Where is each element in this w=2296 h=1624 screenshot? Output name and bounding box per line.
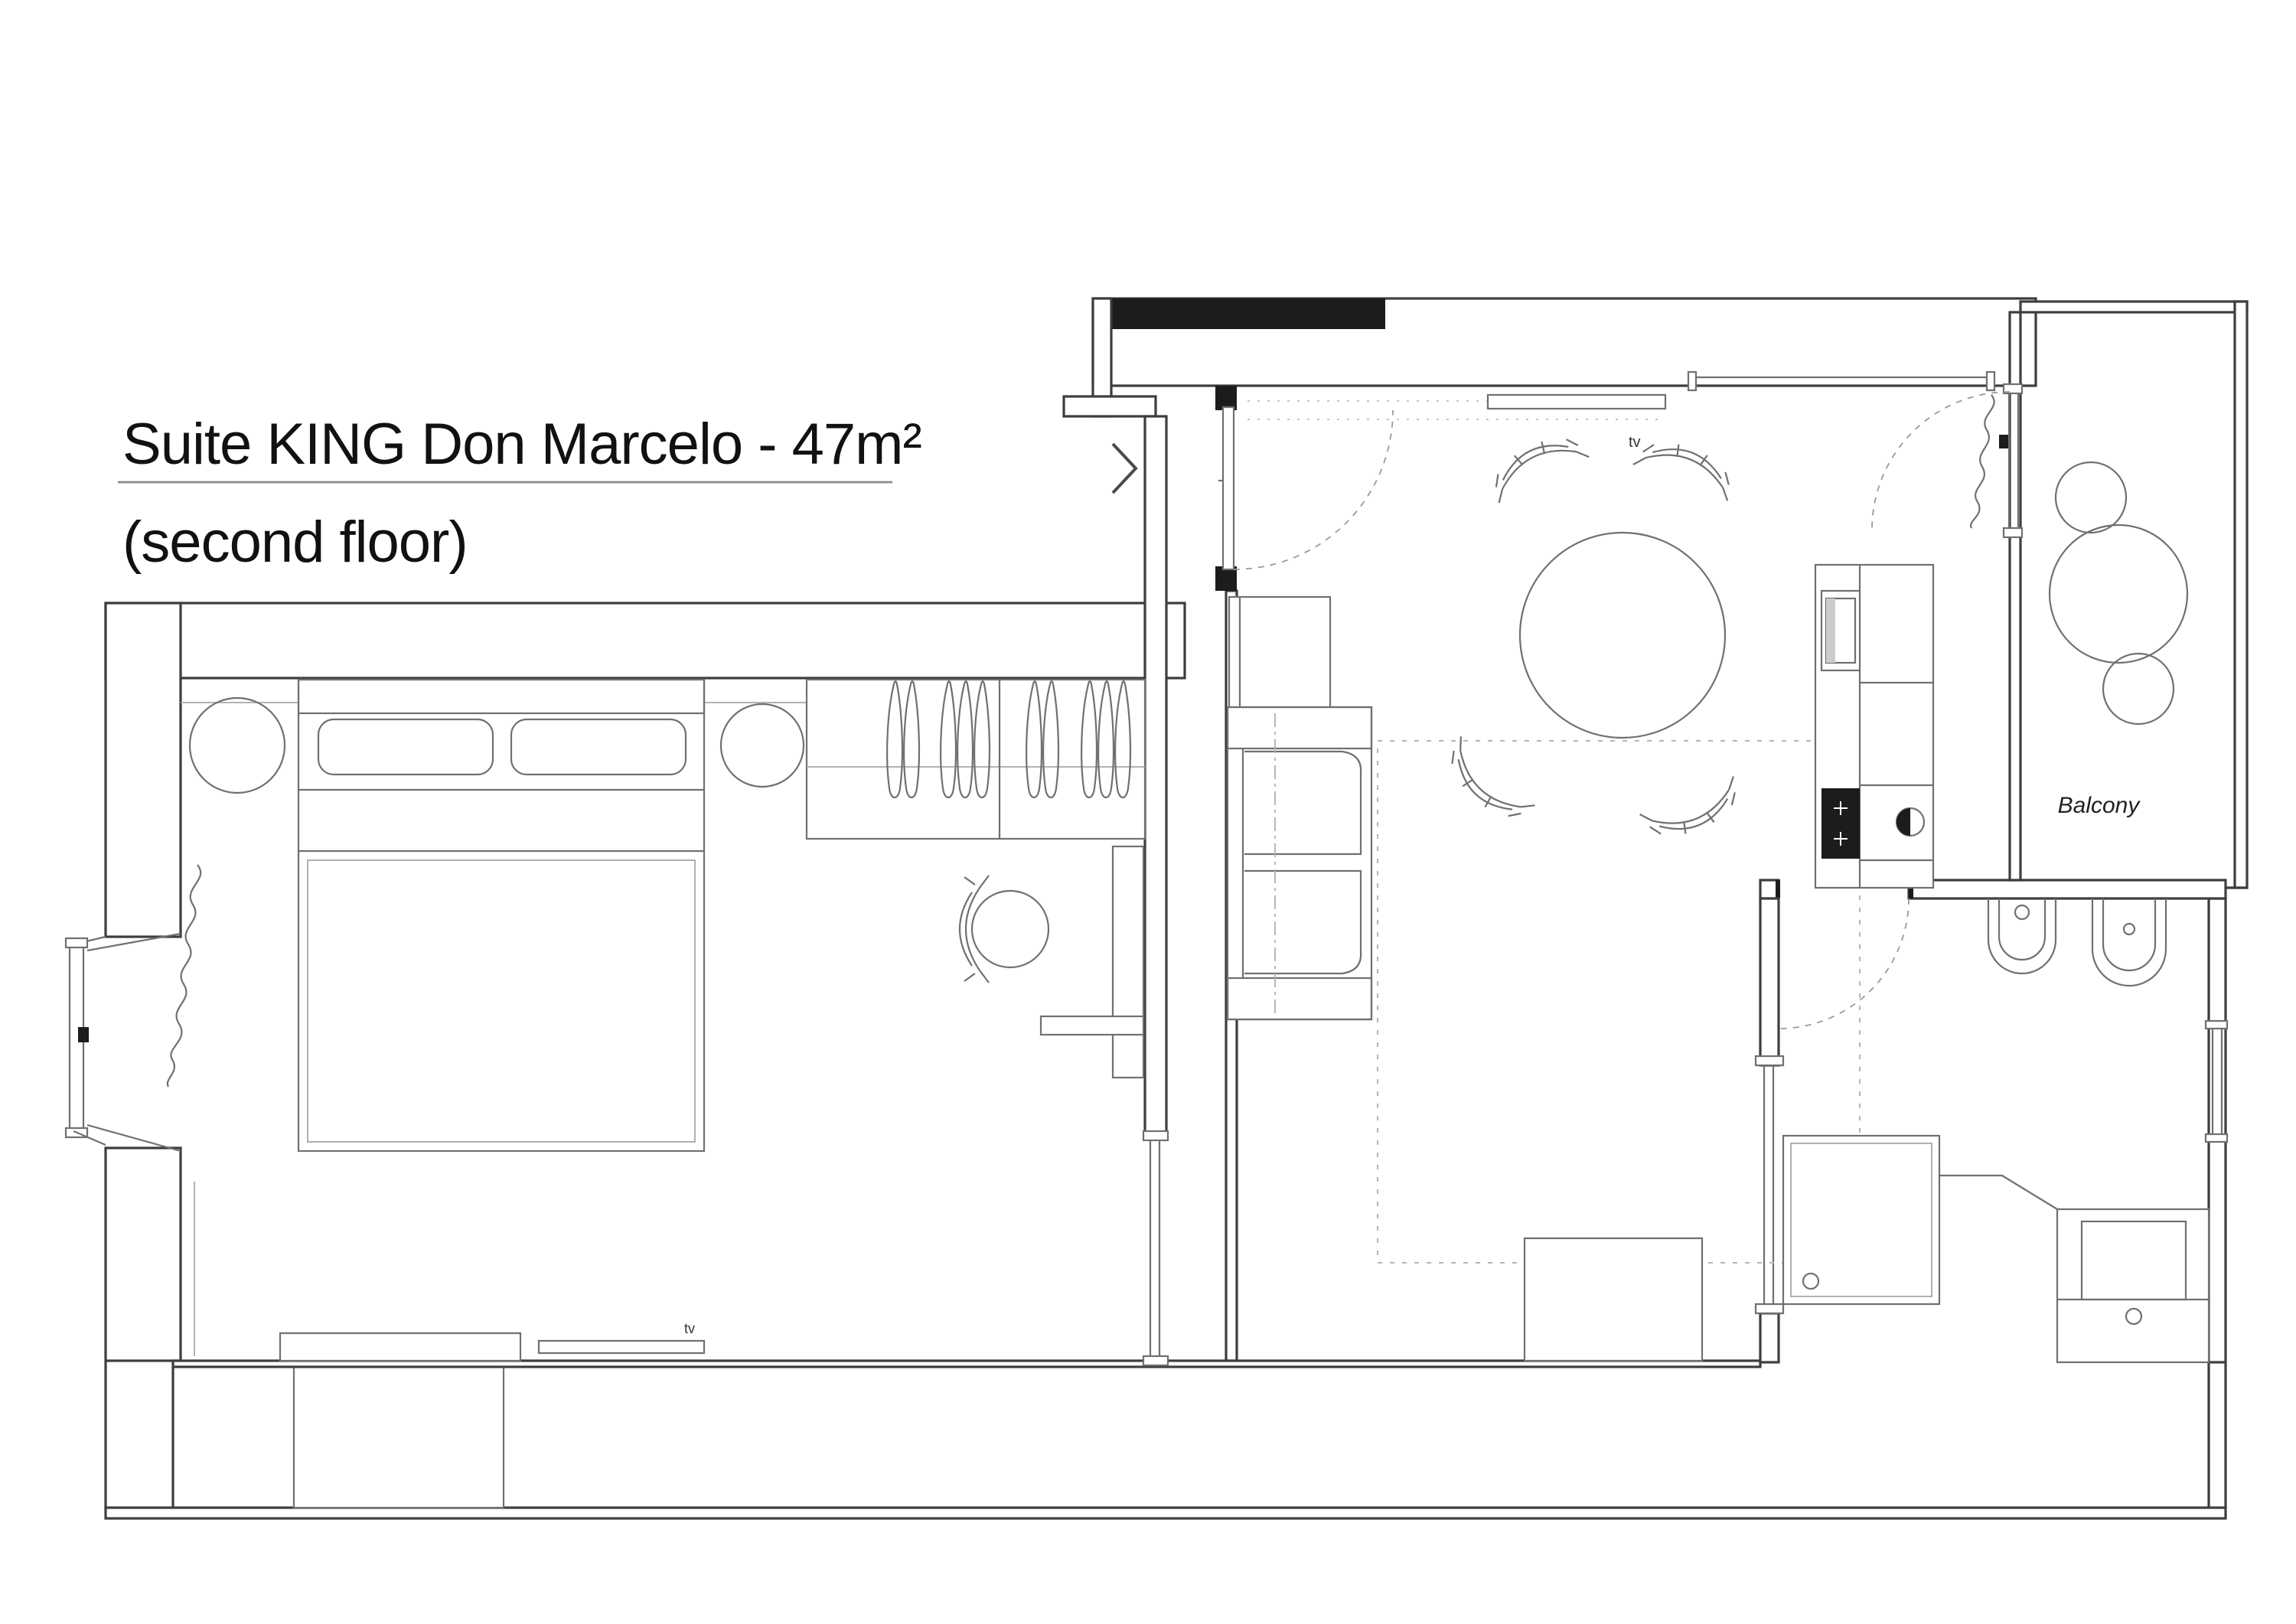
chair-seat	[972, 891, 1049, 967]
bench-outline	[1229, 597, 1330, 710]
wall-corridor-left	[1145, 416, 1166, 1134]
balcony: Balcony	[2050, 462, 2187, 818]
door-cap	[1143, 1356, 1168, 1365]
entry-door-swing-arc	[1234, 410, 1393, 569]
page-subtitle: (second floor)	[122, 510, 468, 575]
bed	[298, 680, 704, 1151]
bathroom	[1783, 898, 2209, 1362]
bed-outline	[298, 680, 704, 1151]
wall-top-thick-band	[1093, 298, 1385, 329]
bench	[1229, 597, 1330, 710]
wall-bath-top	[1909, 880, 2226, 898]
wall-bedroom-left-upper	[106, 603, 181, 937]
wall-porch-band	[1064, 396, 1156, 416]
bath-door-jamb-left	[1776, 880, 1780, 898]
kitchenette	[1815, 565, 1933, 888]
bedroom-console: tv	[280, 1321, 704, 1361]
balcony-chair	[2103, 654, 2174, 724]
door-cap	[1756, 1304, 1783, 1313]
vanity-partition	[1939, 1176, 2057, 1209]
wall-bath-left-upper	[1760, 898, 1779, 1065]
balcony-label: Balcony	[2058, 793, 2141, 818]
closet	[807, 680, 1145, 839]
dining-chair	[1640, 777, 1747, 847]
minibar-fridge-shade	[1826, 598, 1835, 663]
bidet	[2092, 898, 2166, 986]
bathroom-door	[1779, 898, 1909, 1029]
wall-bottom-interior	[173, 1361, 1760, 1367]
bathroom-door-swing-arc	[1779, 898, 1909, 1029]
bidet-faucet-icon	[2124, 924, 2135, 934]
dining-table	[1520, 533, 1725, 738]
wall-bathroom-right	[2209, 898, 2226, 1362]
dining-chair	[1633, 432, 1740, 501]
window-cap	[1688, 372, 1696, 390]
balcony-chair	[2056, 462, 2126, 533]
structure-below-bedroom	[294, 1367, 504, 1508]
console-cabinet	[280, 1333, 520, 1361]
shower-tray	[1783, 1136, 1939, 1304]
title-block: Suite KING Don Marcelo - 47m² (second fl…	[118, 412, 921, 575]
window-cap	[66, 938, 87, 947]
bedroom-tv-label: tv	[684, 1321, 695, 1336]
desk-shelf	[1041, 1016, 1143, 1035]
tv-console	[1488, 395, 1665, 409]
floor-plan-drawing: Suite KING Don Marcelo - 47m² (second fl…	[0, 0, 2296, 1624]
living-tv-console: tv	[1488, 395, 1665, 451]
bathroom-sliding-door	[1756, 1056, 1783, 1313]
living-cabinet	[1525, 1238, 1702, 1361]
balcony-table	[2050, 525, 2187, 663]
sofa	[1228, 707, 1371, 1019]
dining-set	[1437, 426, 1747, 847]
cabinet-outline	[1525, 1238, 1702, 1361]
entry-door-leaf	[1223, 407, 1234, 569]
window-cap	[2004, 528, 2022, 537]
wall-bedroom-top	[106, 603, 1185, 678]
window-handle-icon	[78, 1027, 89, 1042]
living-tv-label: tv	[1629, 434, 1641, 451]
dining-chair	[1437, 736, 1535, 831]
wall-balcony-right	[2235, 302, 2247, 888]
window-cap	[2206, 1021, 2227, 1029]
wall-bedroom-left-lower	[106, 1148, 181, 1361]
curtain-icon	[1971, 395, 1994, 528]
wall-bottom-exterior	[106, 1508, 2226, 1518]
dining-chair	[1483, 426, 1589, 503]
wall-balcony-top	[2020, 302, 2247, 312]
door-cap	[1143, 1131, 1168, 1140]
shower	[1783, 1136, 1939, 1304]
nightstand-right	[721, 704, 804, 787]
toilet-button-icon	[2015, 905, 2029, 919]
desk-chair	[960, 876, 1049, 983]
desk-counter	[1113, 846, 1143, 1078]
desk-area	[960, 846, 1143, 1078]
window-cap	[1987, 372, 1994, 390]
nightstand-left	[190, 698, 285, 793]
wall-bath-left-lower	[1760, 1313, 1779, 1362]
window-handle-icon	[1999, 435, 2008, 448]
balcony-door-window	[1872, 384, 2022, 537]
window-cap	[2206, 1134, 2227, 1142]
cooktop	[1821, 788, 1860, 859]
vanity	[1939, 1176, 2209, 1362]
door-cap	[1756, 1056, 1783, 1065]
bedroom-sliding-door	[1143, 1131, 1168, 1365]
floorplan-page: Suite KING Don Marcelo - 47m² (second fl…	[0, 0, 2296, 1624]
entrance-chevron-icon	[1113, 444, 1136, 493]
tv-screen	[539, 1341, 704, 1353]
page-title: Suite KING Don Marcelo - 47m²	[122, 412, 921, 477]
toilet	[1988, 898, 2056, 973]
entry-area	[1113, 386, 1661, 591]
